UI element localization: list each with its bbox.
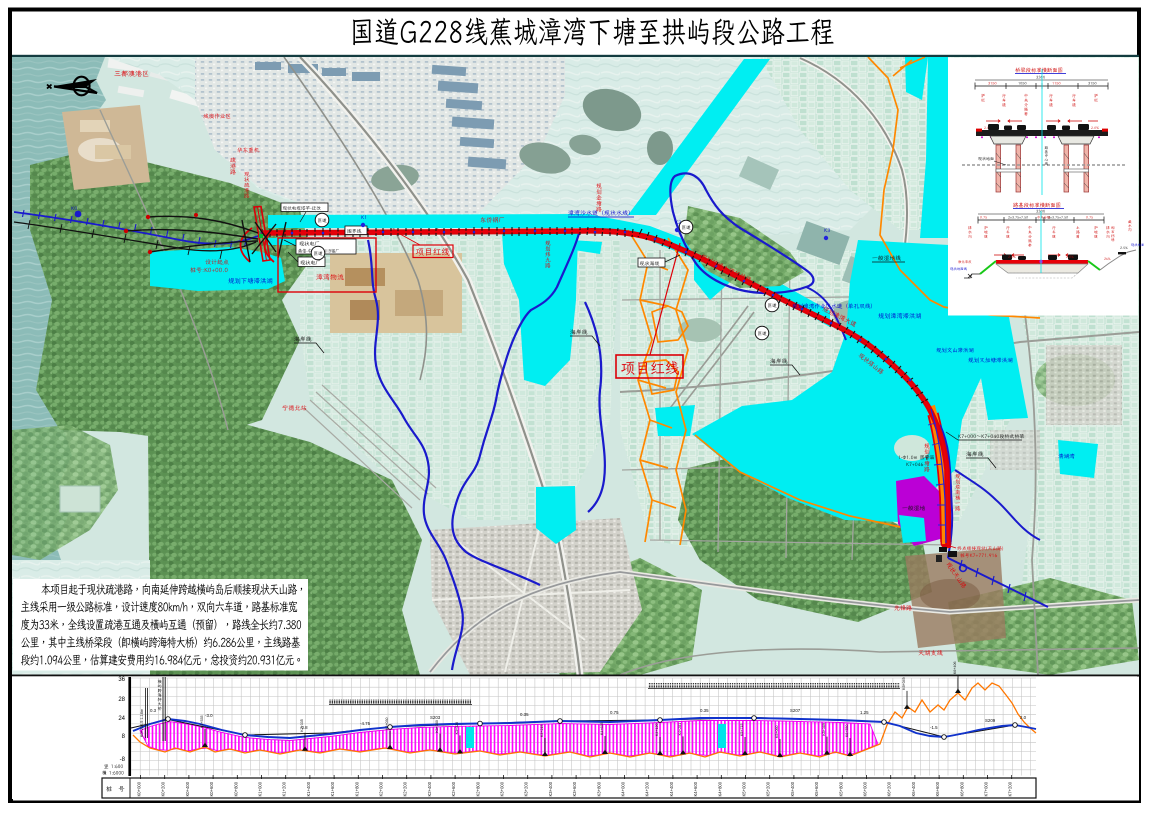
svg-text:2.0: 2.0 bbox=[1020, 715, 1027, 720]
svg-text:K0+600: K0+600 bbox=[209, 781, 214, 796]
svg-text:36: 36 bbox=[118, 677, 125, 683]
svg-text:S203: S203 bbox=[430, 715, 441, 720]
svg-text:K1+200: K1+200 bbox=[282, 781, 287, 796]
svg-text:K4+635: K4+635 bbox=[600, 723, 604, 736]
svg-text:K0+200: K0+200 bbox=[161, 781, 166, 796]
svg-text:-3.0: -3.0 bbox=[205, 713, 213, 718]
svg-text:K7+200: K7+200 bbox=[1008, 781, 1013, 796]
svg-text:K4+000: K4+000 bbox=[621, 781, 626, 796]
svg-text:K6+400: K6+400 bbox=[911, 781, 916, 796]
svg-text:K5+800: K5+800 bbox=[838, 781, 843, 796]
svg-text:K5+000: K5+000 bbox=[742, 781, 747, 796]
svg-text:K6+200: K6+200 bbox=[887, 781, 892, 796]
svg-text:S209: S209 bbox=[985, 718, 996, 723]
svg-text:K0+000: K0+000 bbox=[137, 781, 142, 796]
svg-text:K3+380: K3+380 bbox=[435, 720, 439, 733]
svg-text:24: 24 bbox=[118, 716, 125, 722]
svg-text:K0+800: K0+800 bbox=[233, 781, 238, 796]
svg-text:28: 28 bbox=[118, 697, 125, 703]
svg-text:K2+800: K2+800 bbox=[475, 781, 480, 796]
svg-text:K2+000: K2+000 bbox=[379, 781, 384, 796]
svg-text:K4+281: K4+281 bbox=[678, 723, 682, 736]
svg-text:K6+800: K6+800 bbox=[959, 781, 964, 796]
svg-text:K3+520: K3+520 bbox=[455, 722, 459, 735]
svg-text:0.35: 0.35 bbox=[700, 708, 709, 713]
svg-text:K3+215: K3+215 bbox=[540, 725, 544, 738]
svg-text:K6+406: K6+406 bbox=[953, 662, 957, 675]
svg-text:K3+200: K3+200 bbox=[524, 781, 529, 796]
svg-text:-4.75: -4.75 bbox=[360, 721, 371, 726]
svg-text:K2+200: K2+200 bbox=[403, 781, 408, 796]
svg-text:K4+600: K4+600 bbox=[693, 781, 698, 796]
svg-text:K2+030: K2+030 bbox=[385, 718, 389, 731]
svg-text:K0+400: K0+400 bbox=[185, 781, 190, 796]
svg-text:K5+200: K5+200 bbox=[766, 781, 771, 796]
svg-text:K2+335: K2+335 bbox=[300, 719, 304, 732]
svg-text:K0+236.5 1-16m: K0+236.5 1-16m bbox=[140, 709, 144, 737]
svg-text:S207: S207 bbox=[790, 708, 801, 713]
svg-text:K3+600: K3+600 bbox=[572, 781, 577, 796]
svg-text:K7+000: K7+000 bbox=[984, 781, 989, 796]
svg-text:K6+600: K6+600 bbox=[935, 781, 940, 796]
svg-text:K3+800: K3+800 bbox=[596, 781, 601, 796]
svg-text:K5+715: K5+715 bbox=[740, 724, 744, 737]
svg-text:1.25: 1.25 bbox=[860, 710, 869, 715]
svg-text:K3+400: K3+400 bbox=[548, 781, 553, 796]
svg-text:K5+600: K5+600 bbox=[814, 781, 819, 796]
svg-text:K4+400: K4+400 bbox=[669, 781, 674, 796]
svg-text:K4+200: K4+200 bbox=[645, 781, 650, 796]
svg-text:K1+000: K1+000 bbox=[258, 781, 263, 796]
svg-text:0.3: 0.3 bbox=[150, 708, 157, 713]
svg-text:K1+535: K1+535 bbox=[200, 716, 204, 729]
svg-text:K1+800: K1+800 bbox=[354, 781, 359, 796]
svg-text:0.75: 0.75 bbox=[610, 710, 619, 715]
svg-text:-1.5: -1.5 bbox=[930, 725, 938, 730]
svg-text:K6+550: K6+550 bbox=[845, 725, 849, 738]
svg-text:K3+000: K3+000 bbox=[500, 781, 505, 796]
svg-text:K4+800: K4+800 bbox=[717, 781, 722, 796]
svg-text:K5+060: K5+060 bbox=[775, 726, 779, 739]
svg-text:0.35: 0.35 bbox=[520, 712, 529, 717]
svg-text:K1+400: K1+400 bbox=[306, 781, 311, 796]
svg-text:K5+400: K5+400 bbox=[790, 781, 795, 796]
svg-text:K6+000: K6+000 bbox=[863, 781, 868, 796]
svg-text:K4+120: K4+120 bbox=[655, 724, 659, 737]
svg-text:K2+600: K2+600 bbox=[451, 781, 456, 796]
svg-text:K1+600: K1+600 bbox=[330, 781, 335, 796]
svg-text:K5+389: K5+389 bbox=[822, 723, 826, 736]
svg-text:K6+049: K6+049 bbox=[902, 677, 906, 690]
svg-text:-8: -8 bbox=[120, 757, 126, 763]
svg-text:K2+400: K2+400 bbox=[427, 781, 432, 796]
